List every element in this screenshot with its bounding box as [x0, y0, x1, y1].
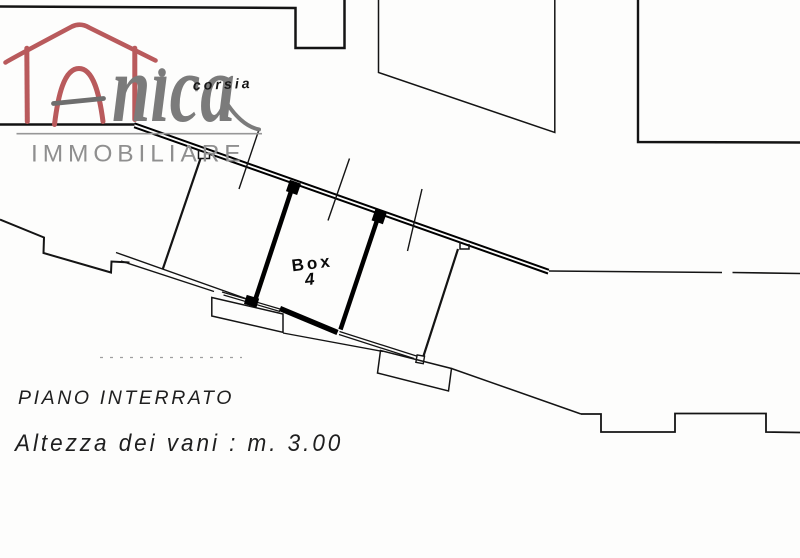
svg-text:PIANO INTERRATO: PIANO INTERRATO — [18, 387, 234, 409]
svg-text:corsia: corsia — [193, 75, 253, 93]
svg-text:IMMOBILIARE: IMMOBILIARE — [31, 141, 246, 168]
svg-text:Altezza dei vani : m. 3.00: Altezza dei vani : m. 3.00 — [13, 429, 343, 456]
